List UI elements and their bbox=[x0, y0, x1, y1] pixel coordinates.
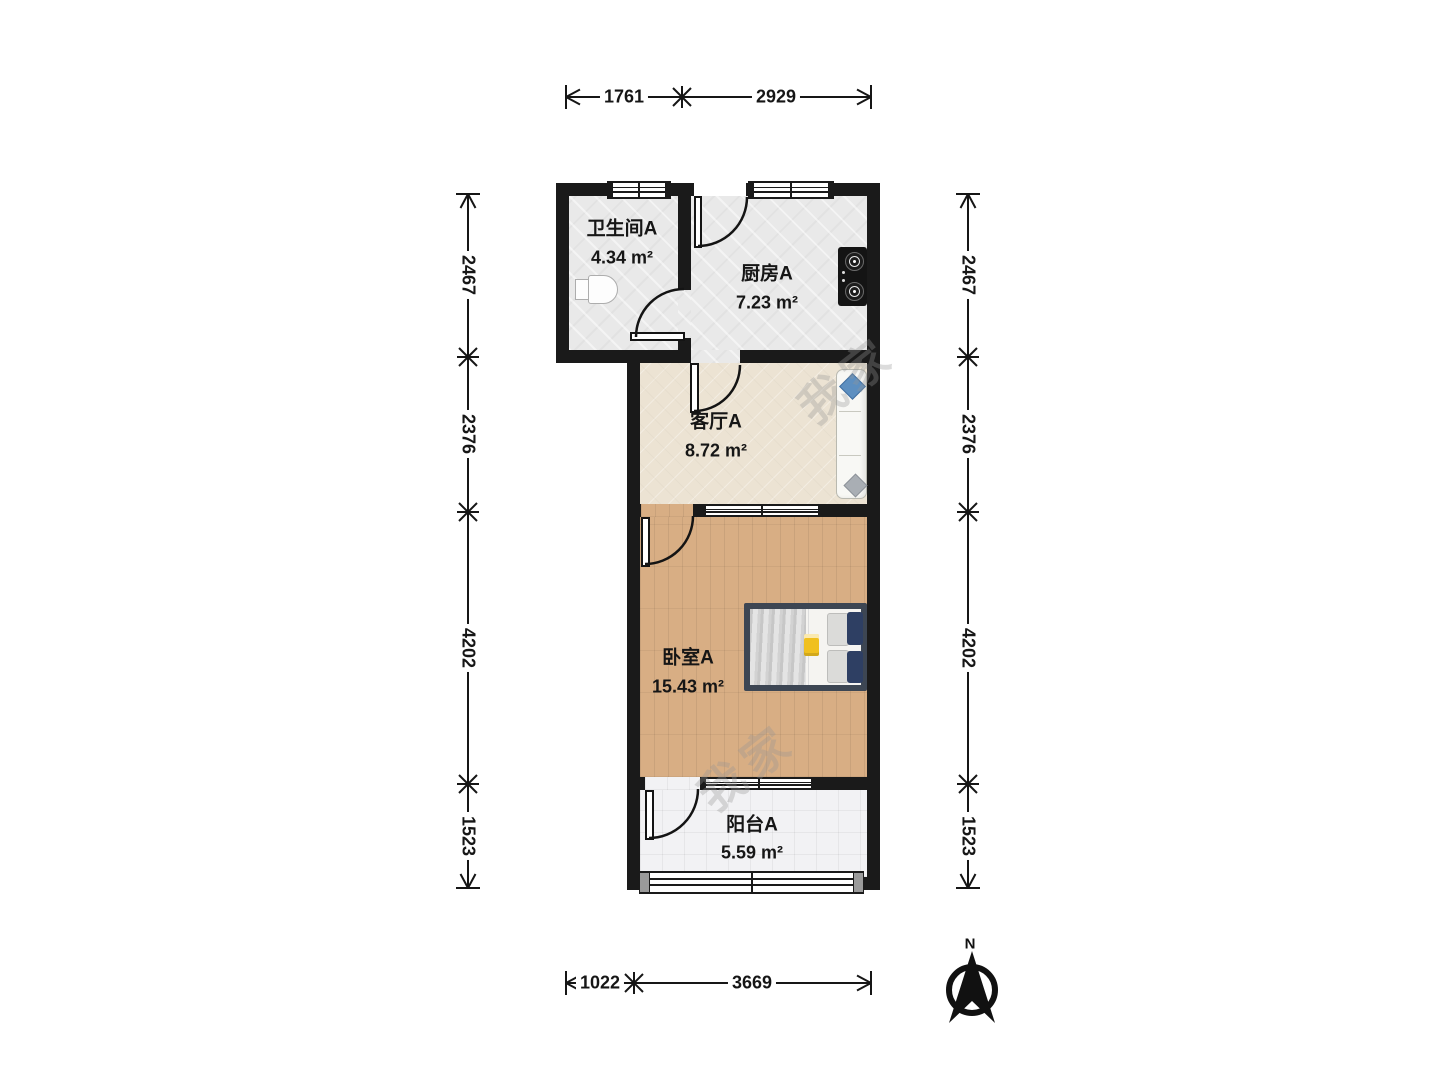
bathroom-label: 卫生间A bbox=[587, 214, 658, 241]
floor-plan: 我家 我家 卫生间A 4.34 m² 厨房A 7.23 m² 客厅A 8.72 … bbox=[0, 0, 1440, 1080]
dim-left-3: 4202 bbox=[458, 624, 479, 672]
compass-icon bbox=[949, 951, 995, 1023]
dim-right-1: 2467 bbox=[958, 251, 979, 299]
dim-left-4: 1523 bbox=[458, 812, 479, 860]
bedroom-area: 15.43 m² bbox=[652, 677, 724, 698]
bathroom-door-arc bbox=[636, 289, 684, 337]
balcony-label: 阳台A bbox=[726, 810, 778, 837]
kitchen-area: 7.23 m² bbox=[736, 293, 798, 314]
entry-door-arc bbox=[698, 197, 747, 246]
dimension-lines bbox=[456, 85, 980, 995]
dim-right-2: 2376 bbox=[958, 410, 979, 458]
bedroom-balcony-door-arc bbox=[649, 789, 698, 838]
dim-left-1: 2467 bbox=[458, 251, 479, 299]
bedroom-label: 卧室A bbox=[662, 643, 714, 670]
living-label: 客厅A bbox=[690, 407, 742, 434]
balcony-area: 5.59 m² bbox=[721, 843, 783, 864]
living-bedroom-door-arc bbox=[645, 516, 693, 564]
plan-overlay bbox=[0, 0, 1440, 1080]
north-label: N bbox=[965, 936, 976, 953]
dim-right-3: 4202 bbox=[958, 624, 979, 672]
dim-top-2: 2929 bbox=[752, 87, 800, 108]
dim-bottom-1: 1022 bbox=[576, 973, 624, 994]
living-area: 8.72 m² bbox=[685, 441, 747, 462]
kitchen-label: 厨房A bbox=[741, 259, 793, 286]
bathroom-area: 4.34 m² bbox=[591, 248, 653, 269]
kitchen-living-door-arc bbox=[694, 365, 740, 411]
dim-left-2: 2376 bbox=[458, 410, 479, 458]
dim-bottom-2: 3669 bbox=[728, 973, 776, 994]
dim-right-4: 1523 bbox=[958, 812, 979, 860]
dim-top-1: 1761 bbox=[600, 87, 648, 108]
